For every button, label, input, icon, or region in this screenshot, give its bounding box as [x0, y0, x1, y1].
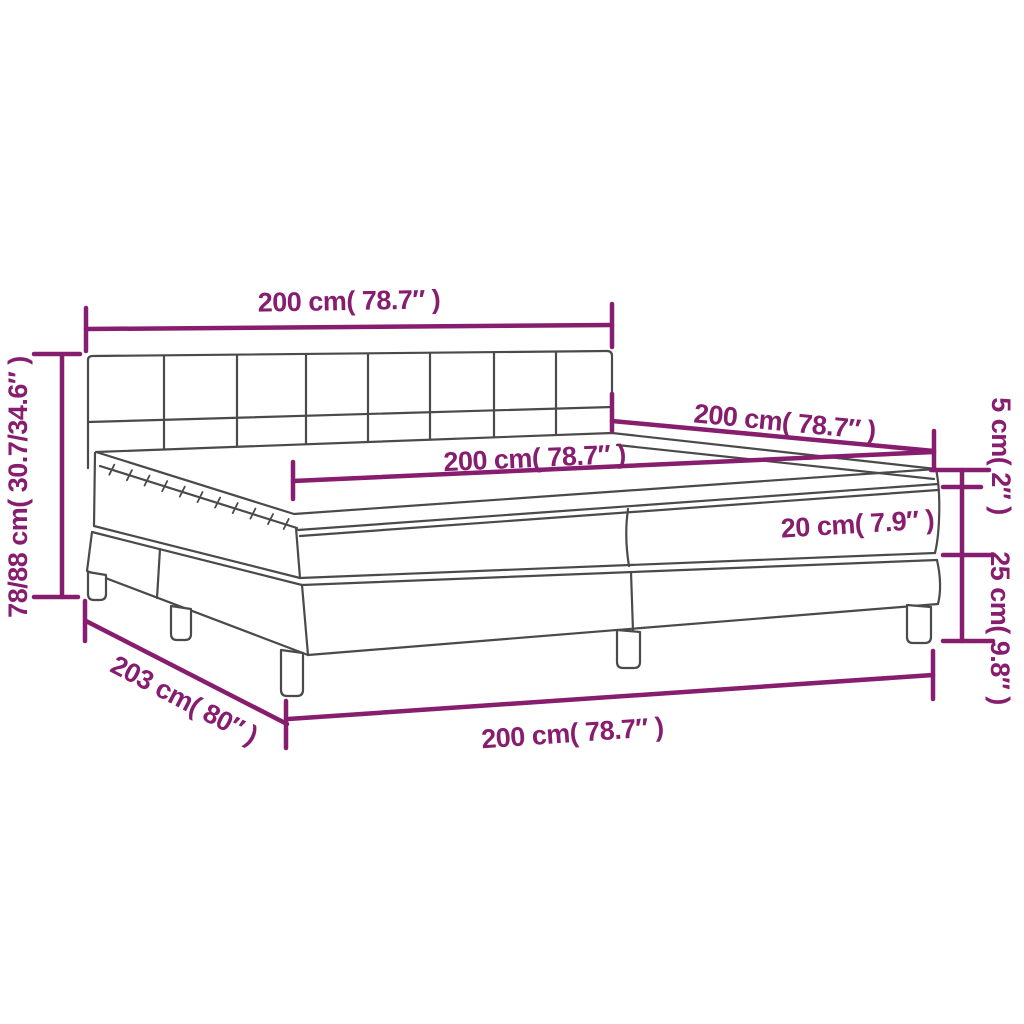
dim-label-topper-height: 5 cm( 2″ ): [986, 397, 1016, 514]
diagram-svg: 200 cm( 78.7″ ) 200 cm( 78.7″ ) 200 cm( …: [0, 0, 1024, 1024]
bed-leg-front-left: [281, 650, 303, 696]
mattress-left-bottom-edge: [94, 526, 300, 578]
dim-label-overall-height: 78/88 cm( 30.7/34.6″ ): [3, 356, 33, 618]
dim-label-headboard-width: 200 cm( 78.7″ ): [257, 284, 440, 317]
dim-line-front-width: [288, 675, 933, 719]
dim-label-frame-width-front: 200 cm( 78.7″ ): [480, 712, 664, 755]
headboard-tuft-row-divider: [88, 407, 612, 422]
dim-label-mattress-height: 20 cm( 7.9″ ): [780, 504, 935, 543]
mattress-front-bottom-edge: [300, 553, 935, 578]
bed-leg-front-center: [617, 630, 640, 668]
base-left-seam: [157, 549, 160, 598]
bed-leg-mid-left: [171, 606, 191, 640]
mattress-left-back-edge: [94, 453, 95, 526]
bed-dimension-diagram: 200 cm( 78.7″ ) 200 cm( 78.7″ ) 200 cm( …: [0, 0, 1024, 1024]
dim-label-base-height: 25 cm( 9.8″ ): [985, 551, 1015, 705]
bed-leg-front-right: [907, 605, 931, 643]
base-front-left-corner: [302, 585, 308, 655]
base-front-top-edge: [302, 560, 937, 585]
dim-line-headboard-width: [86, 325, 612, 329]
mattress-center-split: [626, 509, 629, 566]
bed-leg-back-left: [88, 572, 106, 600]
base-center-seam: [631, 572, 633, 631]
mattress-right-end-curve: [935, 469, 939, 553]
base-right-edge: [937, 560, 940, 604]
headboard-tuft-columns: [164, 352, 556, 449]
